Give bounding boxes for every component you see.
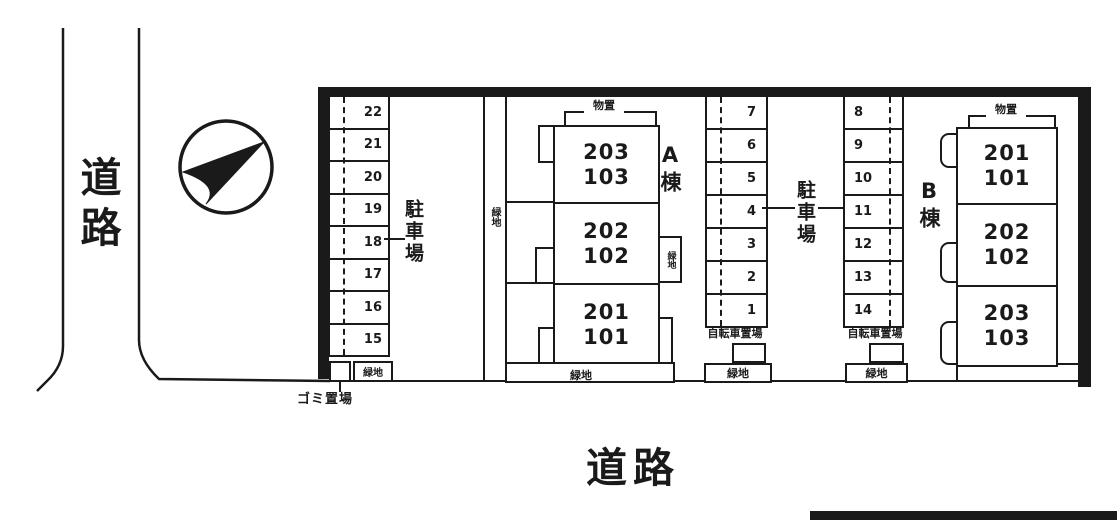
parking-space-number: 15 xyxy=(364,332,382,347)
garbage-label: ゴミ置場 xyxy=(297,393,353,406)
green-box-middle-right: 緑地 xyxy=(845,363,908,383)
parking-space-cell: 5 xyxy=(707,163,766,196)
green-strip-label: 緑地 xyxy=(489,207,499,227)
parking-space-number: 17 xyxy=(364,267,382,282)
parking-column-left: 2221201918171615 xyxy=(328,95,390,357)
unit-number: 103 xyxy=(583,165,630,190)
building-unit: 202102 xyxy=(958,205,1056,287)
parking-dashed-line xyxy=(889,97,891,326)
building-b: 201101202102203103 xyxy=(956,127,1058,367)
parking-space-cell: 14 xyxy=(845,295,902,326)
unit-number: 102 xyxy=(984,245,1031,270)
green-strip-a-bottom: 緑地 xyxy=(505,362,675,383)
building-a: 203103202102201101 xyxy=(553,125,660,367)
parking-lot-label-middle: 駐車場 xyxy=(795,180,814,246)
unit-number: 101 xyxy=(583,325,630,350)
parking-space-number: 14 xyxy=(854,303,872,318)
bicycle-parking-label-right: 自転車置場 xyxy=(838,328,912,339)
parking-space-cell: 11 xyxy=(845,196,902,229)
storage-label-a: 物置 xyxy=(584,100,624,111)
building-unit: 201101 xyxy=(555,285,658,365)
parking-space-cell: 21 xyxy=(330,130,388,163)
storage-bracket-a-left xyxy=(564,111,584,113)
green-box-middle-left-label: 緑地 xyxy=(727,365,749,381)
parking-space-number: 6 xyxy=(747,138,756,153)
parking-space-number: 12 xyxy=(854,237,872,252)
parking-column-middle-left: 7654321 xyxy=(705,95,768,328)
leader-line-space11 xyxy=(818,207,844,209)
building-a-step-v xyxy=(671,317,673,365)
storage-bracket-a-right xyxy=(624,111,657,113)
parking-space-cell: 3 xyxy=(707,229,766,262)
green-box-a-right-label: 緑地 xyxy=(666,251,675,269)
parking-space-cell: 10 xyxy=(845,163,902,196)
building-b-name: B棟 xyxy=(918,179,939,232)
parking-space-cell: 15 xyxy=(330,325,388,356)
building-b-bottom-ext xyxy=(1056,363,1078,365)
parking-space-cell: 18 xyxy=(330,227,388,260)
parking-space-cell: 8 xyxy=(845,97,902,130)
building-unit: 202102 xyxy=(555,204,658,285)
compass-circle xyxy=(180,121,272,213)
road-label-bottom: 道路 xyxy=(586,448,680,489)
storage-bracket-a-tick-left xyxy=(564,111,566,125)
parking-space-cell: 22 xyxy=(330,97,388,130)
parking-space-cell: 4 xyxy=(707,196,766,229)
green-strip-a-bottom-label: 緑地 xyxy=(559,367,603,383)
storage-bracket-b-tick-left xyxy=(968,115,970,127)
page-edge-bar xyxy=(810,511,1117,520)
unit-number: 101 xyxy=(984,166,1031,191)
leader-line-space4 xyxy=(762,207,795,209)
parking-space-number: 1 xyxy=(747,303,756,318)
parking-lot-label-left: 駐車場 xyxy=(403,199,422,265)
unit-number: 203 xyxy=(984,301,1031,326)
parking-space-number: 18 xyxy=(364,235,382,250)
building-a-name: A棟 xyxy=(659,143,680,196)
parking-space-cell: 1 xyxy=(707,295,766,326)
parking-space-cell: 7 xyxy=(707,97,766,130)
unit-divider-ext-a1 xyxy=(507,201,553,203)
parking-space-cell: 13 xyxy=(845,262,902,295)
building-b-left-ext xyxy=(956,365,958,381)
parking-space-number: 3 xyxy=(747,237,756,252)
site-border-right xyxy=(1078,87,1091,387)
storage-label-b: 物置 xyxy=(986,104,1026,115)
garbage-box xyxy=(329,361,351,382)
building-unit: 203103 xyxy=(958,287,1056,365)
storage-bracket-b-right xyxy=(1026,115,1056,117)
parking-space-number: 10 xyxy=(854,171,872,186)
leader-line-garbage xyxy=(339,382,341,392)
green-box-garbage: 緑地 xyxy=(353,361,393,382)
unit-number: 103 xyxy=(984,326,1031,351)
compass-needle-icon xyxy=(183,142,264,204)
green-box-middle-right-label: 緑地 xyxy=(866,365,888,381)
parking-space-cell: 17 xyxy=(330,260,388,293)
site-plan: 道路 道路 2221201918171615 駐車場 緑地 2031032021… xyxy=(0,0,1117,520)
storage-bracket-b-tick-right xyxy=(1054,115,1056,127)
parking-dashed-line xyxy=(343,97,345,355)
parking-space-number: 22 xyxy=(364,105,382,120)
road-label-left: 道路 xyxy=(76,156,117,256)
parking-space-cell: 19 xyxy=(330,195,388,228)
parking-space-number: 4 xyxy=(747,204,756,219)
road-left-inner-line xyxy=(139,28,330,381)
parking-space-cell: 9 xyxy=(845,130,902,163)
building-b-entry-top xyxy=(940,133,958,168)
parking-column-middle-right: 891011121314 xyxy=(843,95,904,328)
green-strip-vertical: 緑地 xyxy=(483,97,507,381)
unit-number: 201 xyxy=(984,141,1031,166)
unit-number: 203 xyxy=(583,140,630,165)
unit-number: 201 xyxy=(583,300,630,325)
storage-bracket-a-tick-right xyxy=(655,111,657,126)
building-b-entry-middle xyxy=(940,242,958,283)
parking-space-number: 16 xyxy=(364,300,382,315)
parking-space-number: 7 xyxy=(747,105,756,120)
parking-space-number: 20 xyxy=(364,170,382,185)
parking-space-number: 8 xyxy=(854,105,863,120)
building-a-entry-middle xyxy=(535,247,555,284)
parking-space-number: 19 xyxy=(364,202,382,217)
parking-dashed-line xyxy=(720,97,722,326)
unit-number: 202 xyxy=(984,220,1031,245)
parking-space-number: 9 xyxy=(854,138,863,153)
unit-number: 202 xyxy=(583,219,630,244)
parking-space-number: 2 xyxy=(747,270,756,285)
building-a-entry-bottom xyxy=(538,327,555,366)
building-b-entry-bottom xyxy=(940,321,958,365)
bicycle-parking-label-left: 自転車置場 xyxy=(698,328,772,339)
unit-number: 102 xyxy=(583,244,630,269)
parking-space-cell: 6 xyxy=(707,130,766,163)
building-unit: 201101 xyxy=(958,129,1056,205)
parking-space-cell: 12 xyxy=(845,229,902,262)
parking-space-cell: 2 xyxy=(707,262,766,295)
green-box-a-right: 緑地 xyxy=(658,236,682,283)
green-box-middle-left: 緑地 xyxy=(704,363,772,383)
parking-space-number: 11 xyxy=(854,204,872,219)
building-unit: 203103 xyxy=(555,127,658,204)
bicycle-parking-box-left xyxy=(732,343,766,363)
road-left-outer-line xyxy=(37,28,63,391)
building-a-entry-top xyxy=(538,125,555,163)
parking-space-number: 5 xyxy=(747,171,756,186)
bicycle-parking-box-right xyxy=(869,343,904,363)
parking-space-cell: 20 xyxy=(330,162,388,195)
parking-space-number: 21 xyxy=(364,137,382,152)
storage-bracket-b-left xyxy=(968,115,986,117)
green-box-garbage-label: 緑地 xyxy=(363,364,383,379)
parking-space-cell: 16 xyxy=(330,292,388,325)
parking-space-number: 13 xyxy=(854,270,872,285)
